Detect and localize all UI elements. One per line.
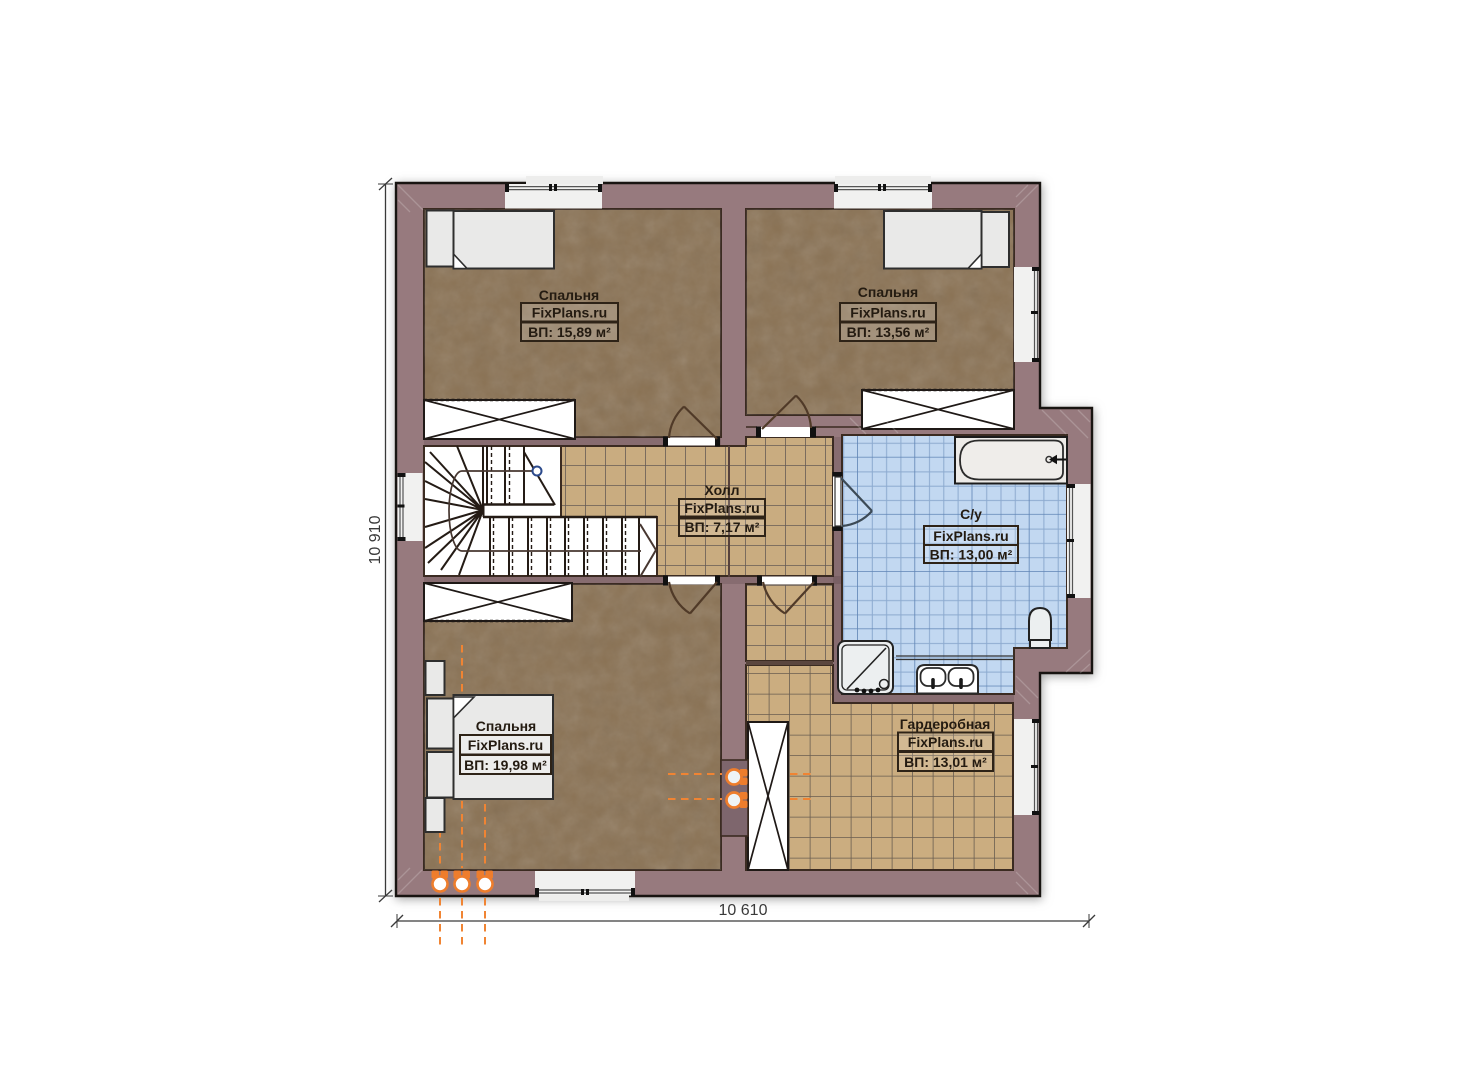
- svg-text:ВП: 15,89 м²: ВП: 15,89 м²: [528, 324, 611, 340]
- svg-text:FixPlans.ru: FixPlans.ru: [468, 737, 543, 753]
- svg-text:ВП: 13,00 м²: ВП: 13,00 м²: [930, 547, 1013, 563]
- svg-text:Холл: Холл: [704, 482, 739, 498]
- svg-text:FixPlans.ru: FixPlans.ru: [908, 734, 983, 750]
- svg-text:С/у: С/у: [960, 506, 982, 522]
- svg-text:ВП: 13,01 м²: ВП: 13,01 м²: [904, 754, 987, 770]
- svg-text:FixPlans.ru: FixPlans.ru: [933, 528, 1008, 544]
- svg-text:Спальня: Спальня: [858, 284, 918, 300]
- svg-text:10 910: 10 910: [367, 515, 384, 564]
- svg-text:FixPlans.ru: FixPlans.ru: [850, 305, 925, 321]
- svg-text:ВП: 13,56 м²: ВП: 13,56 м²: [847, 324, 930, 340]
- svg-text:FixPlans.ru: FixPlans.ru: [532, 305, 607, 321]
- svg-text:ВП: 7,17 м²: ВП: 7,17 м²: [685, 519, 760, 535]
- svg-text:Спальня: Спальня: [476, 718, 536, 734]
- svg-text:10 610: 10 610: [719, 902, 768, 919]
- svg-text:FixPlans.ru: FixPlans.ru: [684, 500, 759, 516]
- svg-text:Гардеробная: Гардеробная: [900, 716, 991, 732]
- svg-text:Спальня: Спальня: [539, 287, 599, 303]
- svg-text:ВП: 19,98 м²: ВП: 19,98 м²: [464, 757, 547, 773]
